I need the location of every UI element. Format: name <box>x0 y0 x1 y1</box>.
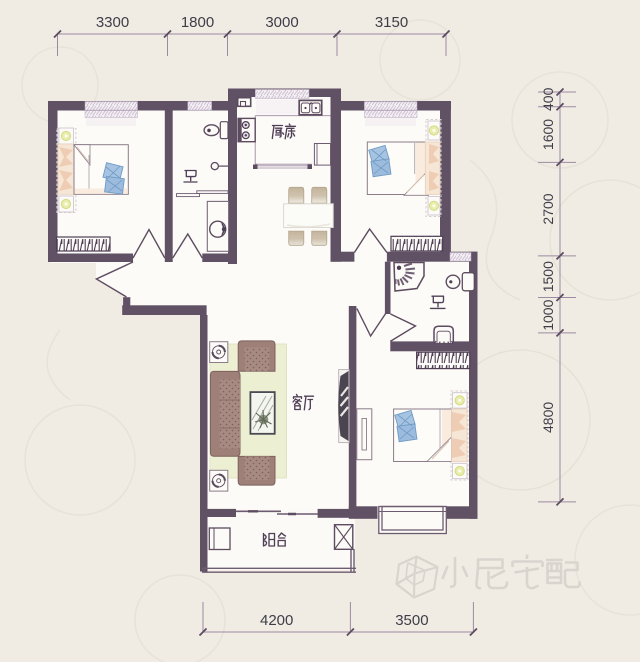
svg-text:3300: 3300 <box>96 14 129 31</box>
svg-text:3150: 3150 <box>375 14 408 31</box>
svg-text:1800: 1800 <box>181 14 214 31</box>
svg-text:3000: 3000 <box>265 14 298 31</box>
svg-text:400: 400 <box>540 87 556 111</box>
svg-text:2700: 2700 <box>540 193 556 224</box>
svg-text:4800: 4800 <box>540 402 556 433</box>
svg-text:1600: 1600 <box>540 119 556 150</box>
svg-text:4200: 4200 <box>260 612 293 629</box>
svg-text:3500: 3500 <box>395 612 428 629</box>
svg-text:1000: 1000 <box>540 299 556 330</box>
svg-text:1500: 1500 <box>540 261 556 292</box>
